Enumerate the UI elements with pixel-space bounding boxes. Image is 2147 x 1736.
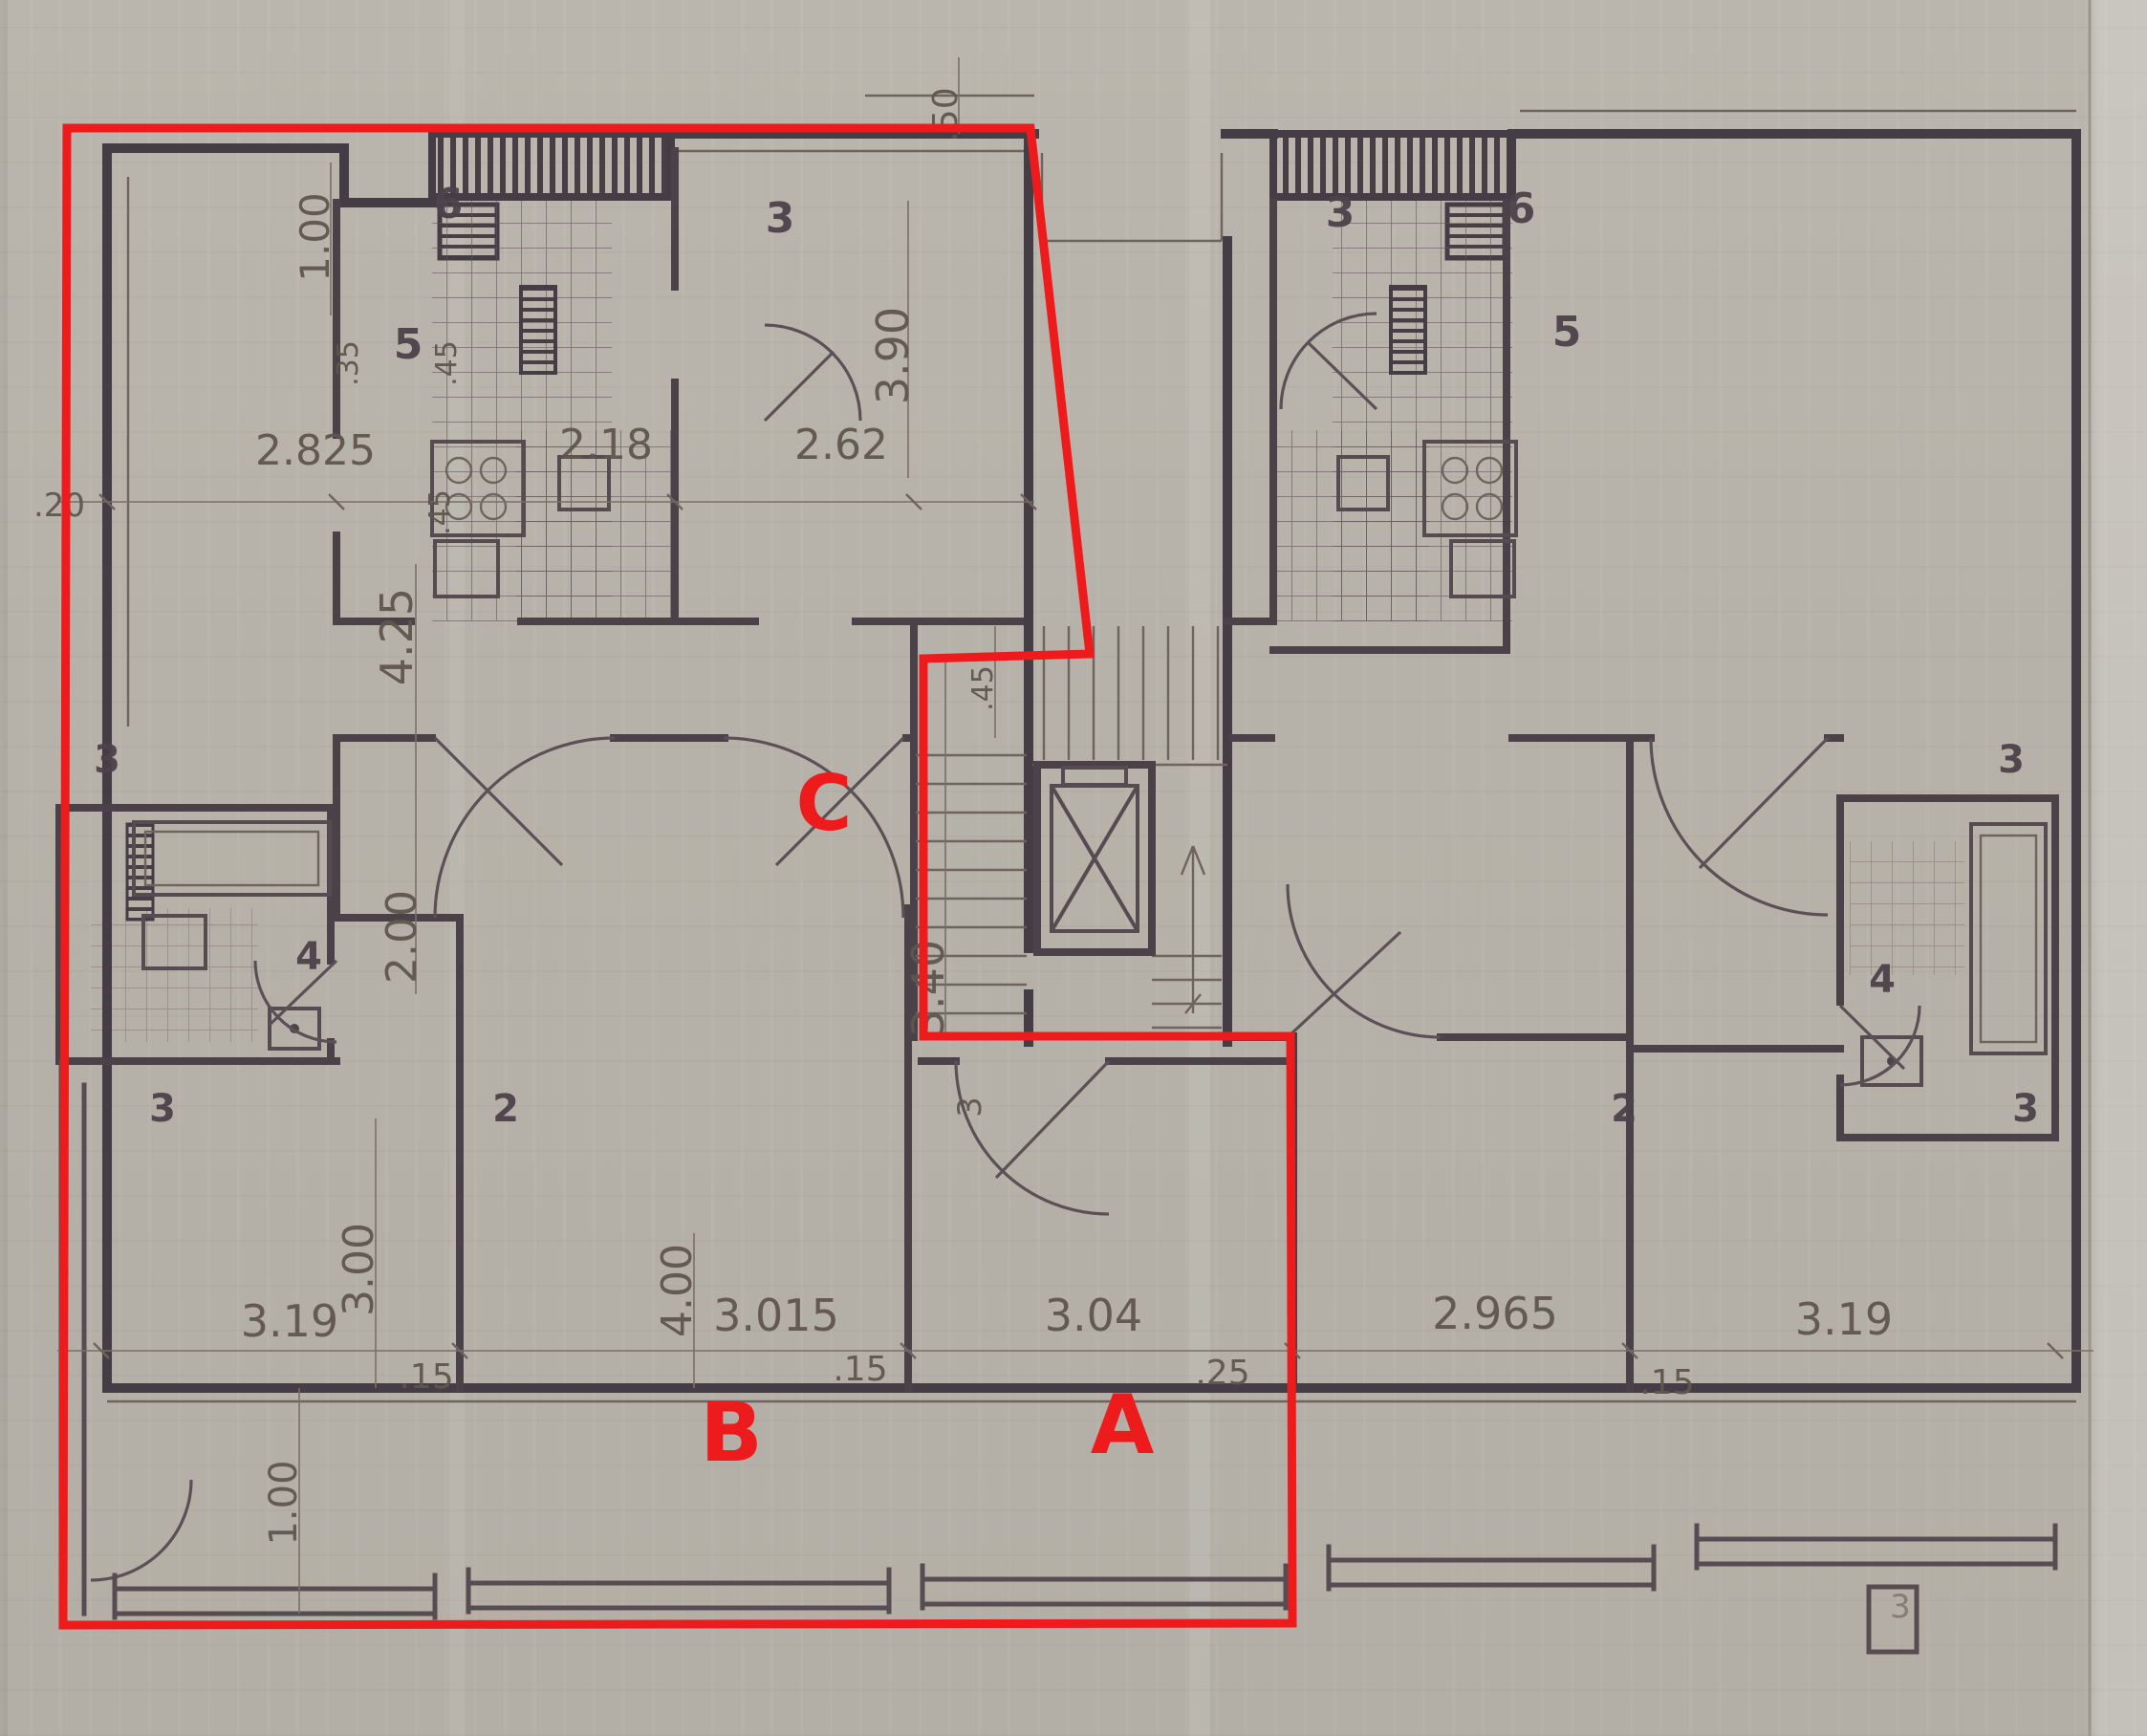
balcony-segment-5 — [1697, 1526, 2055, 1568]
walls-outer — [107, 96, 2076, 1401]
room-number-label: 3 — [766, 194, 795, 243]
dimension-label: 3.015 — [713, 1290, 839, 1341]
dimension-label: 3 — [1890, 1588, 1911, 1626]
apartment-letter-a: A — [1091, 1378, 1155, 1473]
dimension-label: .15 — [1639, 1363, 1694, 1402]
dimension-label: 1.00 — [292, 192, 338, 282]
dimension-label: 3 — [951, 1096, 989, 1118]
dimension-label: .35 — [332, 340, 365, 386]
elevator — [1037, 765, 1152, 952]
door-leaf-corridor-right — [1288, 932, 1400, 1037]
scanned-floor-plan: .202.8252.182.623.193.0153.042.9653.19.1… — [0, 0, 2147, 1736]
loggia-window-band-right — [1273, 134, 1512, 197]
room-number-label: 6 — [434, 180, 464, 228]
balcony-segment-3 — [922, 1566, 1286, 1608]
dimension-label: .25 — [1195, 1354, 1249, 1393]
room-number-label: 5 — [394, 320, 423, 369]
loggia-window-band-left — [432, 134, 671, 197]
room-number-label: 3 — [1326, 188, 1355, 237]
dimension-label: 3.40 — [902, 940, 954, 1037]
dimension-label: .45 — [430, 340, 464, 386]
room-number-label: 3 — [2012, 1087, 2039, 1131]
room-number-label: 4 — [1869, 958, 1896, 1002]
room-number-label: 3 — [1998, 738, 2025, 782]
balcony-segment-1 — [115, 1575, 435, 1617]
flue-hatch-left — [521, 287, 555, 373]
dimension-label: 2.18 — [559, 421, 653, 469]
dimension-lines — [57, 57, 2093, 1614]
door-leaf-room-right — [1700, 738, 1828, 868]
dimension-label: 3.19 — [241, 1295, 338, 1347]
room-number-label: 6 — [1507, 184, 1536, 233]
room-number-label: 3 — [149, 1087, 176, 1131]
dimension-label: 4.00 — [653, 1244, 702, 1337]
apartment-letter-b: B — [700, 1385, 763, 1481]
dimension-label: 2.965 — [1432, 1288, 1558, 1339]
dimension-label: .15 — [833, 1350, 887, 1389]
wall-right-rooms-divider — [1630, 738, 1840, 1388]
elevator-door-box — [1063, 768, 1126, 785]
door-leaf-hall-left — [765, 352, 834, 421]
dimension-label: .45 — [423, 489, 457, 535]
bath-tiles-left — [91, 908, 258, 1042]
dimension-label: 3.04 — [1045, 1290, 1142, 1341]
bathtub-left-inner — [145, 832, 318, 885]
balcony-segment-4 — [1329, 1547, 1654, 1589]
floor-plan-svg: .202.8252.182.623.193.0153.042.9653.19.1… — [0, 0, 2147, 1736]
dimension-label: 3.00 — [335, 1223, 383, 1316]
dimension-label: 3.19 — [1795, 1293, 1893, 1345]
elevator-x-mark — [1052, 786, 1138, 931]
room-number-label: 5 — [1552, 308, 1582, 357]
dimension-label: 1.00 — [262, 1460, 306, 1545]
dimension-label: 2.00 — [378, 890, 426, 984]
stairwell — [916, 626, 1227, 1028]
room-number-label: 3 — [94, 738, 120, 782]
stair-treads-lower-flight — [1152, 956, 1222, 1028]
balcony-segment-2 — [468, 1570, 889, 1612]
door-leaf-roomA — [996, 1061, 1109, 1178]
dimension-label: 4.25 — [371, 588, 423, 685]
room-number-label: 2 — [492, 1087, 519, 1131]
dimension-label: .50 — [926, 87, 965, 141]
door-arc-balcony-left — [91, 1480, 191, 1580]
apartment-letter-c: C — [796, 759, 853, 848]
bathtub-right-inner — [1981, 835, 2036, 1042]
dimension-label: 3.90 — [867, 307, 919, 404]
bath-shaft-left — [127, 824, 153, 920]
bath-tiles-right — [1850, 841, 1964, 975]
dimension-label: 2.62 — [794, 421, 888, 469]
bathtub-left — [134, 822, 330, 895]
dimension-label: .20 — [33, 487, 85, 525]
bathtub-right — [1971, 824, 2046, 1053]
balconies — [61, 1061, 2055, 1652]
outer-wall-top — [107, 134, 2076, 203]
flue-hatch-right — [1391, 287, 1425, 373]
room-number-label: 4 — [295, 935, 322, 979]
dimension-label: 2.825 — [255, 426, 376, 475]
dimension-label: .15 — [399, 1357, 453, 1397]
room-number-label: 2 — [1611, 1087, 1637, 1131]
dimension-label: .45 — [966, 665, 1000, 711]
